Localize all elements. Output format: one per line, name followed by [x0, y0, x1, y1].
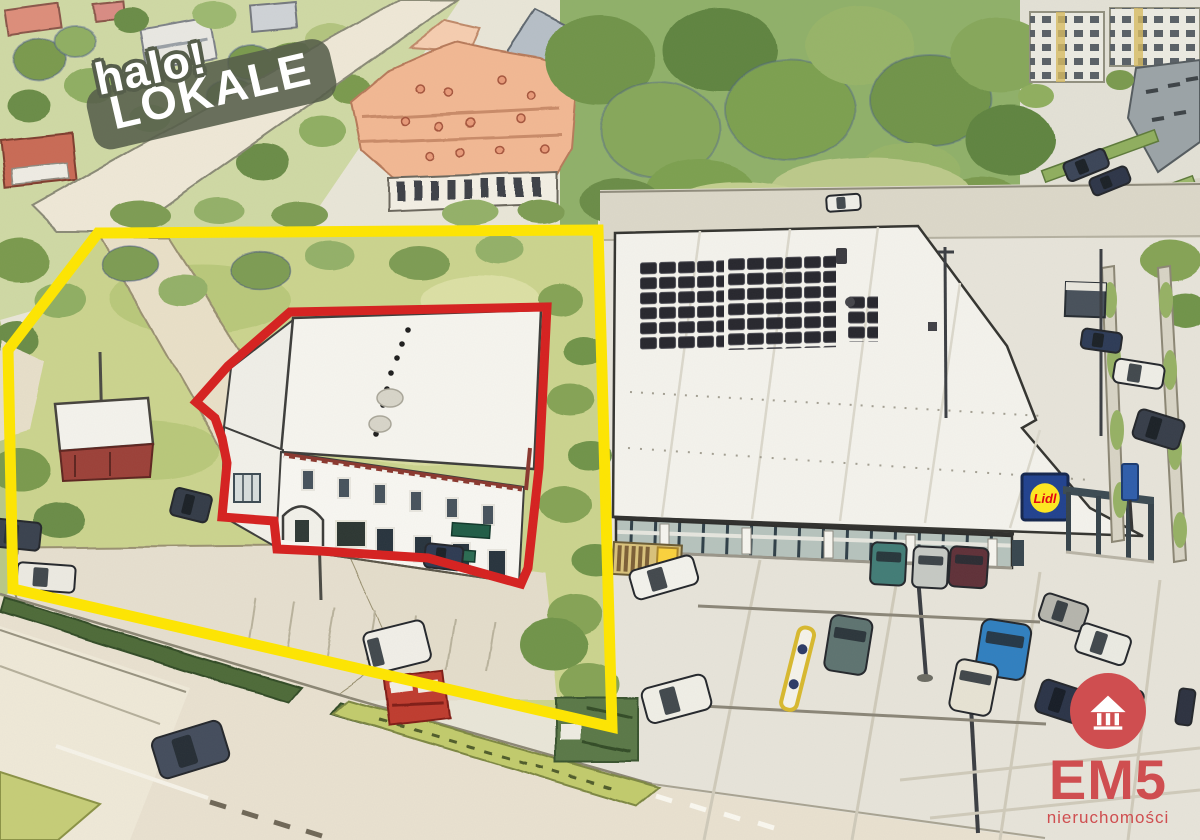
- em5-subtitle: nieruchomości: [1030, 808, 1186, 828]
- em5-logo-mark: [1070, 673, 1146, 749]
- house-columns-icon: [1086, 689, 1130, 733]
- em5-logo: EM5 nieruchomości: [1030, 673, 1186, 828]
- em5-name: EM5: [1030, 753, 1186, 806]
- aerial-marketing-image: Lidl: [0, 0, 1200, 840]
